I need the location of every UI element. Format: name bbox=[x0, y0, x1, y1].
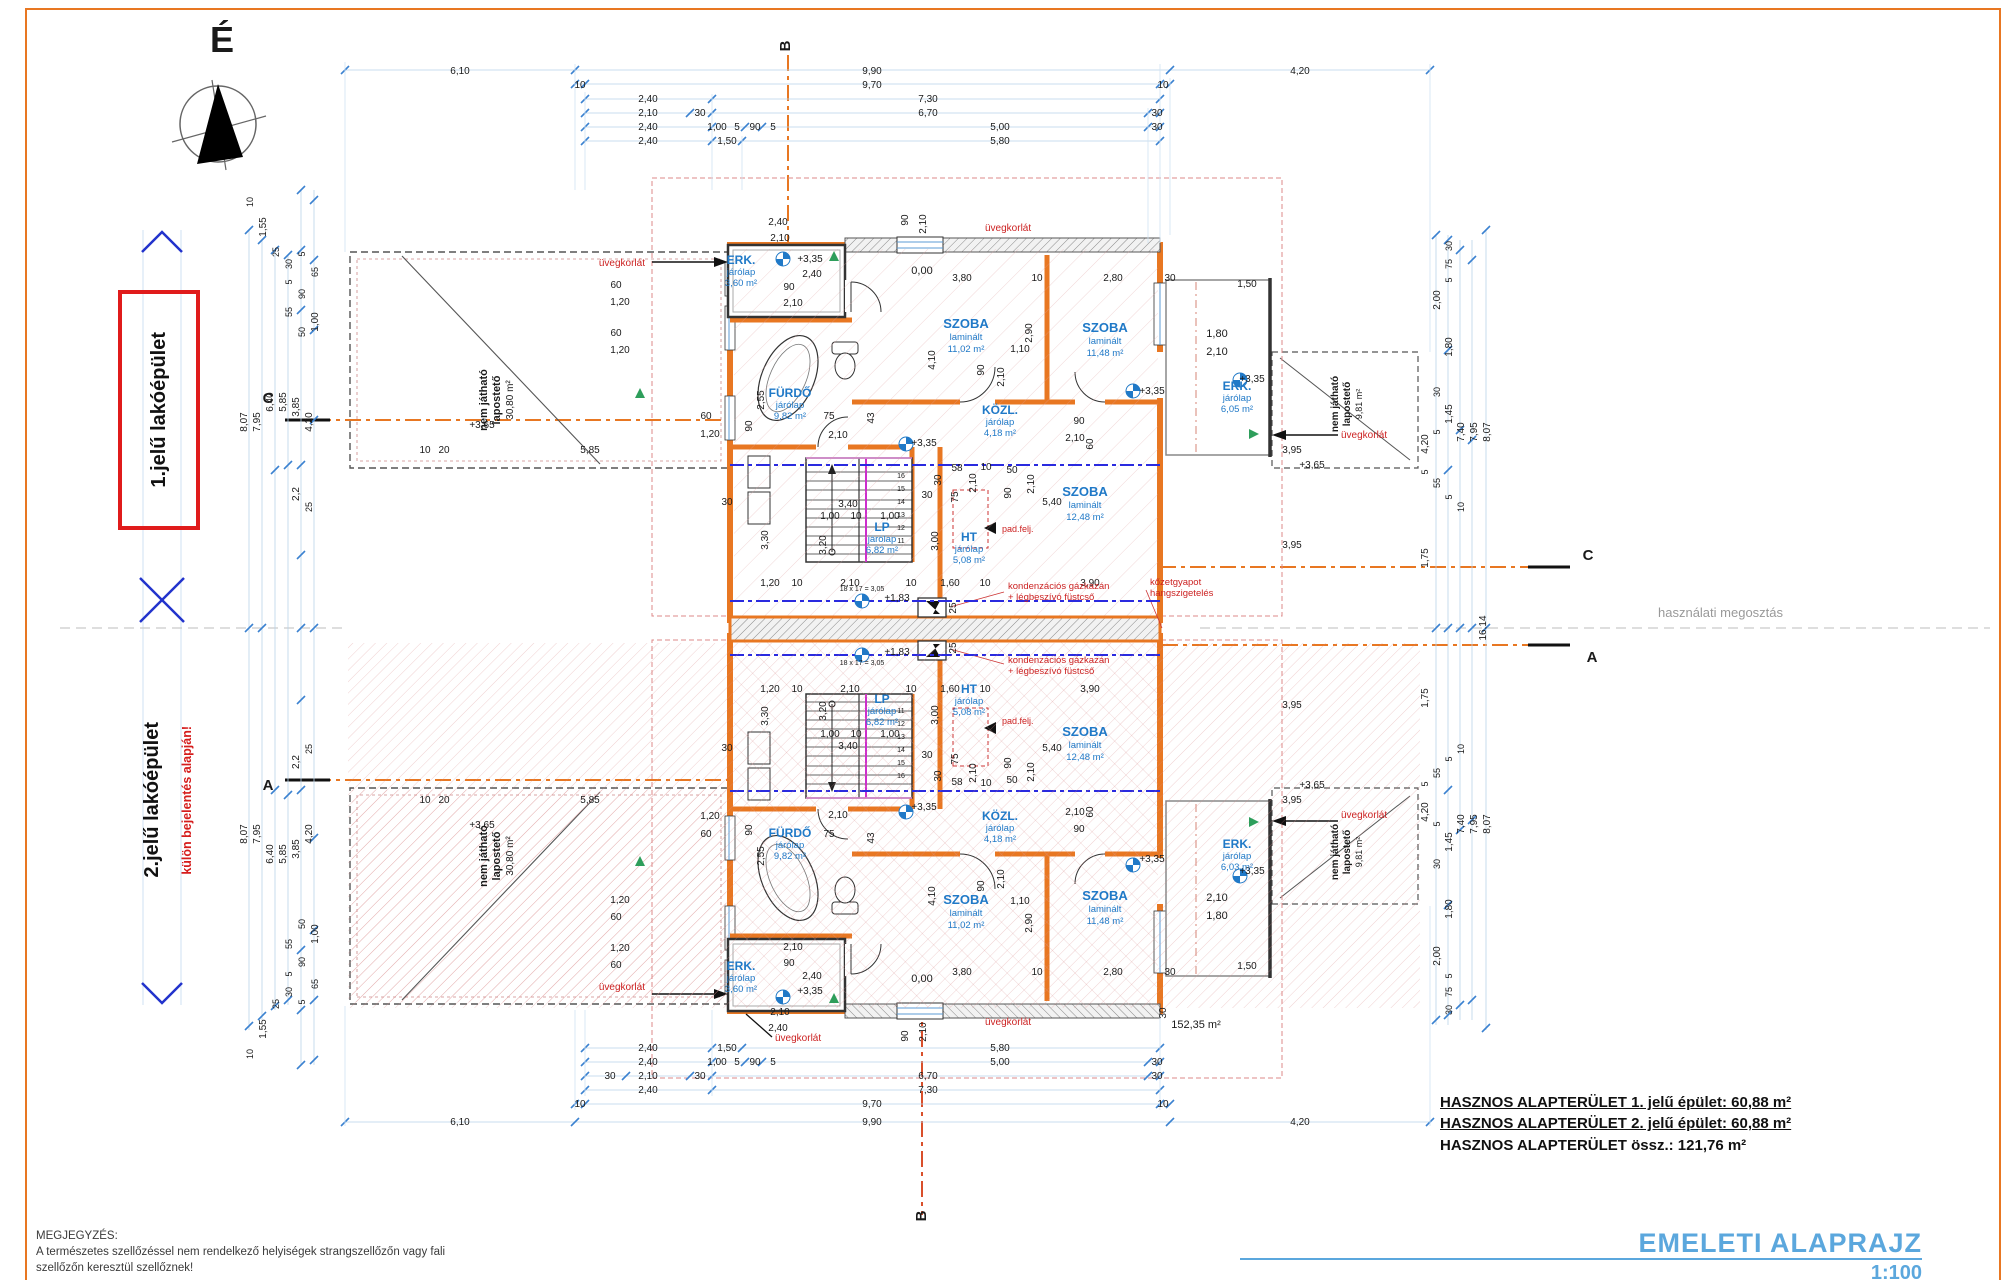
plan-label: 30 bbox=[1164, 967, 1176, 978]
plan-label: 10 bbox=[1456, 502, 1466, 512]
plan-label: 1,20 bbox=[760, 578, 780, 589]
plan-label: 2,10 bbox=[1206, 892, 1227, 904]
plan-label: 60 bbox=[610, 328, 622, 339]
plan-label: laminált bbox=[950, 908, 983, 919]
plan-label: 5 bbox=[284, 971, 294, 976]
banner-building2-note-label: külön bejelentés alapján! bbox=[180, 726, 194, 875]
plan-label: A bbox=[1587, 649, 1598, 666]
plan-label: üvegkorlát bbox=[985, 1017, 1031, 1028]
plan-label: 2,40 bbox=[802, 971, 822, 982]
plan-label: 50 bbox=[1006, 775, 1018, 786]
plan-label: 2,10 bbox=[770, 233, 790, 244]
plan-label: 3,30 bbox=[760, 530, 771, 550]
plan-label: +3,35 bbox=[911, 438, 937, 449]
notes-line1: A természetes szellőzéssel nem rendelkez… bbox=[36, 1244, 445, 1260]
plan-label: É bbox=[210, 19, 234, 60]
drawing-page: ÉBBCACAhasználati megosztás16,14152,35 m… bbox=[0, 0, 2006, 1280]
area-line3: HASZNOS ALAPTERÜLET össz.: 121,76 m² bbox=[1440, 1135, 1791, 1156]
plan-label: 60 bbox=[1085, 806, 1096, 818]
flat-roof-left bbox=[350, 252, 728, 468]
plan-label: 30 bbox=[1151, 1071, 1163, 1082]
plan-label: 5 bbox=[770, 1057, 776, 1068]
plan-label: 5,40 bbox=[1042, 743, 1062, 754]
plan-label: HT bbox=[961, 682, 978, 696]
plan-label: 7,95 bbox=[1469, 814, 1480, 834]
plan-label: 5 bbox=[297, 251, 307, 256]
plan-label: 12 bbox=[897, 525, 905, 532]
plan-label: 7,95 bbox=[252, 824, 263, 844]
plan-label: 5 bbox=[770, 122, 776, 133]
plan-label: 75 bbox=[1444, 259, 1454, 269]
plan-label: 55 bbox=[1432, 478, 1442, 488]
plan-label: 25 bbox=[271, 247, 281, 257]
plan-label: 6,40 bbox=[265, 844, 276, 864]
plan-label: 9,70 bbox=[862, 80, 882, 91]
plan-label: 90 bbox=[900, 214, 911, 226]
plan-label: B bbox=[777, 40, 794, 51]
plan-label: 58 bbox=[951, 777, 963, 788]
banner-arrow-down-icon bbox=[142, 983, 182, 1003]
area-line1: HASZNOS ALAPTERÜLET 1. jelű épület: 60,8… bbox=[1440, 1092, 1791, 1113]
plan-label: LP bbox=[874, 692, 889, 706]
plan-label: 7,40 bbox=[1456, 814, 1467, 834]
plan-label: 5,00 bbox=[990, 122, 1010, 133]
plan-label: LP bbox=[874, 520, 889, 534]
plan-label: 2,10 bbox=[1065, 433, 1085, 444]
plan-label: 2,55 bbox=[756, 390, 767, 410]
plan-label: 90 bbox=[1003, 487, 1014, 499]
plan-label: 3,80 bbox=[952, 967, 972, 978]
plan-label: 90 bbox=[1003, 757, 1014, 769]
plan-label: 1,50 bbox=[1237, 961, 1257, 972]
plan-label: lapostető bbox=[491, 831, 503, 880]
plan-label: 2,2 bbox=[291, 487, 302, 501]
plan-label: 10 bbox=[905, 684, 917, 695]
plan-label: kondenzációs gázkazán bbox=[1008, 581, 1109, 592]
plan-label: 5 bbox=[1444, 494, 1454, 499]
plan-label: 1,00 bbox=[310, 924, 321, 944]
plan-label: 65 bbox=[310, 267, 320, 277]
plan-label: 7,30 bbox=[918, 1085, 938, 1096]
plan-label: járólap bbox=[954, 696, 984, 707]
plan-label: 30 bbox=[694, 108, 706, 119]
plan-label: 10 bbox=[1031, 273, 1043, 284]
plan-label: 10 bbox=[419, 445, 431, 456]
plan-label: 30 bbox=[1151, 122, 1163, 133]
plan-label: laminált bbox=[1089, 336, 1122, 347]
plan-label: 11,48 m² bbox=[1087, 916, 1124, 927]
plan-label: 11 bbox=[897, 538, 904, 545]
plan-label: 5 bbox=[734, 1057, 740, 1068]
banner-building2: 2.jelű lakóépület bbox=[139, 690, 165, 910]
plan-label: 1,55 bbox=[258, 217, 269, 237]
plan-label: 1,00 bbox=[310, 312, 321, 332]
plan-label: 30 bbox=[1444, 1005, 1454, 1015]
plan-label: 13 bbox=[897, 512, 905, 519]
plan-label: FÜRDŐ bbox=[769, 385, 812, 400]
plan-label: járólap bbox=[726, 973, 756, 984]
plan-label: nem játható bbox=[478, 369, 490, 431]
plan-label: 30 bbox=[284, 987, 294, 997]
plan-label: 2,90 bbox=[1024, 323, 1035, 343]
plan-label: 1,20 bbox=[700, 429, 720, 440]
plan-label: 90 bbox=[744, 420, 755, 432]
plan-label: 2,10 bbox=[1206, 346, 1227, 358]
plan-label: 3,80 bbox=[952, 273, 972, 284]
plan-label: 30 bbox=[694, 1071, 706, 1082]
building2-terrace-hatch bbox=[352, 790, 726, 1002]
plan-label: 2,40 bbox=[638, 1043, 658, 1054]
plan-label: 50 bbox=[297, 327, 307, 337]
plan-label: üvegkorlát bbox=[775, 1033, 821, 1044]
plan-label: 11,48 m² bbox=[1087, 348, 1124, 359]
plan-label: 10 bbox=[905, 578, 917, 589]
plan-label: járólap bbox=[1222, 851, 1252, 862]
plan-label: járólap bbox=[775, 840, 805, 851]
plan-label: ERK. bbox=[1223, 837, 1252, 851]
area-line2: HASZNOS ALAPTERÜLET 2. jelű épület: 60,8… bbox=[1440, 1113, 1791, 1134]
plan-label: 9,90 bbox=[862, 1117, 882, 1128]
plan-label: 1,80 bbox=[1444, 337, 1455, 357]
plan-label: 3,40 bbox=[838, 499, 858, 510]
plan-label: 10 bbox=[1157, 80, 1169, 91]
plan-label: 10 bbox=[980, 462, 992, 473]
plan-label: 3,60 m² bbox=[725, 278, 757, 289]
plan-label: 2,00 bbox=[1432, 290, 1443, 310]
plan-label: üvegkorlát bbox=[599, 982, 645, 993]
plan-label: 30 bbox=[1432, 387, 1442, 397]
plan-label: ERK. bbox=[1223, 379, 1252, 393]
plan-label: 5 bbox=[1432, 821, 1442, 826]
plan-label: 5,08 m² bbox=[953, 555, 985, 566]
plan-label: 3,40 bbox=[838, 741, 858, 752]
plan-label: 8,07 bbox=[239, 412, 250, 432]
plan-label: 50 bbox=[1006, 465, 1018, 476]
plan-label: járólap bbox=[775, 400, 805, 411]
plan-label: +3,65 bbox=[1299, 460, 1325, 471]
plan-label: 90 bbox=[1073, 824, 1085, 835]
plan-label: 1,20 bbox=[700, 811, 720, 822]
plan-label: 60 bbox=[610, 280, 622, 291]
plan-label: 2,10 bbox=[1026, 762, 1037, 782]
plan-label: 5 bbox=[1444, 973, 1454, 978]
plan-label: 4,10 bbox=[927, 350, 938, 370]
plan-label: 1,60 bbox=[940, 684, 960, 695]
plan-label: KÖZL. bbox=[982, 402, 1018, 417]
plan-label: 1,20 bbox=[610, 297, 630, 308]
plan-label: 16 bbox=[897, 473, 905, 480]
plan-label: 30 bbox=[284, 259, 294, 269]
plan-label: 1,80 bbox=[1206, 910, 1227, 922]
plan-label: 7,40 bbox=[1456, 422, 1467, 442]
plan-label: lapostető bbox=[1342, 830, 1353, 874]
plan-label: 5 bbox=[297, 999, 307, 1004]
plan-label: ERK. bbox=[727, 253, 756, 267]
plan-label: 2,10 bbox=[840, 578, 860, 589]
plan-label: üvegkorlát bbox=[1341, 810, 1387, 821]
plan-label: 2,40 bbox=[768, 217, 788, 228]
plan-label: 4,18 m² bbox=[984, 428, 1016, 439]
plan-label: 30 bbox=[1151, 108, 1163, 119]
plan-label: 1,55 bbox=[258, 1019, 269, 1039]
plan-label: 4,20 bbox=[1290, 66, 1310, 77]
plan-label: 9,90 bbox=[862, 66, 882, 77]
plan-label: pad.felj. bbox=[1002, 716, 1034, 726]
plan-label: nem játható bbox=[1330, 376, 1341, 432]
plan-label: ERK. bbox=[727, 959, 756, 973]
plan-label: 30 bbox=[921, 490, 933, 501]
floor-plan-canvas: ÉBBCACAhasználati megosztás16,14152,35 m… bbox=[0, 0, 2006, 1280]
plan-label: 2,10 bbox=[638, 1071, 658, 1082]
plan-label: +1,83 bbox=[884, 593, 910, 604]
plan-label: kondenzációs gázkazán bbox=[1008, 655, 1109, 666]
plan-label: 1,80 bbox=[1444, 899, 1455, 919]
plan-label: 14 bbox=[897, 499, 905, 506]
plan-label: 10 bbox=[574, 1099, 586, 1110]
plan-label: 1,00 bbox=[820, 511, 840, 522]
plan-label: 90 bbox=[749, 122, 761, 133]
plan-label: 2,40 bbox=[638, 136, 658, 147]
useful-area-block: HASZNOS ALAPTERÜLET 1. jelű épület: 60,8… bbox=[1440, 1092, 1791, 1156]
plan-label: 5 bbox=[1444, 277, 1454, 282]
plan-label: 90 bbox=[783, 958, 795, 969]
plan-label: 60 bbox=[610, 912, 622, 923]
plan-label: hangszigetelés bbox=[1150, 588, 1214, 599]
plan-label: 3,00 bbox=[930, 705, 941, 725]
plan-label: 2,40 bbox=[638, 1057, 658, 1068]
plan-label: 2,10 bbox=[1026, 474, 1037, 494]
plan-label: 25 bbox=[304, 502, 314, 512]
plan-label: 30 bbox=[1164, 273, 1176, 284]
plan-label: 60 bbox=[700, 829, 712, 840]
plan-label: 2,10 bbox=[918, 1022, 929, 1042]
plan-label: 30,80 m² bbox=[505, 836, 516, 876]
plan-label: 0,00 bbox=[911, 265, 932, 277]
plan-label: 4,20 bbox=[1290, 1117, 1310, 1128]
plan-label: 11,02 m² bbox=[948, 920, 985, 931]
plan-label: 90 bbox=[783, 282, 795, 293]
plan-label: 90 bbox=[900, 1030, 911, 1042]
plan-label: 20 bbox=[438, 445, 450, 456]
plan-label: 43 bbox=[866, 832, 877, 844]
plan-label: 5,85 bbox=[580, 795, 600, 806]
plan-label: 2,40 bbox=[768, 1023, 788, 1034]
plan-label: 4,20 bbox=[304, 824, 315, 844]
plan-label: járólap bbox=[867, 706, 897, 717]
plan-label: SZOBA bbox=[1082, 888, 1128, 903]
plan-label: B bbox=[913, 1210, 930, 1221]
plan-label: kőzetgyapot bbox=[1150, 577, 1202, 588]
plan-label: 10 bbox=[574, 80, 586, 91]
plan-label: 2,10 bbox=[1065, 807, 1085, 818]
plan-label: használati megosztás bbox=[1658, 605, 1784, 620]
plan-label: 4,10 bbox=[927, 886, 938, 906]
plan-label: 1,20 bbox=[610, 345, 630, 356]
plan-label: 7,30 bbox=[918, 94, 938, 105]
plan-label: 60 bbox=[610, 960, 622, 971]
plan-label: 3,95 bbox=[1282, 795, 1302, 806]
plan-label: 9,82 m² bbox=[774, 851, 806, 862]
plan-label: 50 bbox=[297, 919, 307, 929]
plan-label: 10 bbox=[979, 578, 991, 589]
plan-label: 3,60 m² bbox=[725, 984, 757, 995]
plan-label: 2,10 bbox=[828, 810, 848, 821]
banner-building2-label: 2.jelű lakóépület bbox=[141, 722, 164, 878]
plan-label: 10 bbox=[850, 511, 862, 522]
plan-label: 75 bbox=[1444, 987, 1454, 997]
plan-label: +3,35 bbox=[797, 986, 823, 997]
notes-block: MEGJEGYZÉS: A természetes szellőzéssel n… bbox=[36, 1228, 445, 1276]
plan-label: 4,20 bbox=[304, 412, 315, 432]
plan-label: járólap bbox=[954, 544, 984, 555]
plan-label: 1,75 bbox=[1420, 548, 1431, 568]
plan-label: 90 bbox=[749, 1057, 761, 1068]
plan-label: 30 bbox=[921, 750, 933, 761]
drawing-scale: 1:100 bbox=[1700, 1262, 1922, 1280]
plan-label: 10 bbox=[1157, 1099, 1169, 1110]
plan-label: laminált bbox=[950, 332, 983, 343]
plan-label: 5,85 bbox=[278, 392, 289, 412]
plan-label: 3,30 bbox=[760, 706, 771, 726]
plan-label: 9,70 bbox=[862, 1099, 882, 1110]
plan-label: 2,40 bbox=[638, 122, 658, 133]
plan-label: 2,2 bbox=[291, 755, 302, 769]
plan-label: 3,95 bbox=[1282, 540, 1302, 551]
plan-label: üvegkorlát bbox=[599, 258, 645, 269]
plan-label: 30 bbox=[721, 743, 733, 754]
plan-label: 6,82 m² bbox=[866, 717, 898, 728]
plan-label: C bbox=[1583, 547, 1594, 564]
plan-label: 1,00 bbox=[707, 122, 727, 133]
plan-label: 6,10 bbox=[450, 1117, 470, 1128]
plan-label: 7,95 bbox=[1469, 422, 1480, 442]
plan-label: járólap bbox=[1222, 393, 1252, 404]
notes-line2: szellőzőn keresztül szellőznek! bbox=[36, 1260, 445, 1276]
plan-label: 2,10 bbox=[996, 367, 1007, 387]
plan-label: 2,10 bbox=[968, 473, 979, 493]
plan-label: 2,90 bbox=[1024, 913, 1035, 933]
plan-label: 6,40 bbox=[265, 392, 276, 412]
plan-label: 10 bbox=[245, 197, 255, 207]
balcony-right bbox=[1166, 278, 1270, 457]
plan-label: 5,08 m² bbox=[953, 707, 985, 718]
plan-label: 30 bbox=[604, 1071, 616, 1082]
plan-label: 25 bbox=[948, 602, 959, 614]
plan-label: 30 bbox=[1151, 1057, 1163, 1068]
plan-label: 8,07 bbox=[1482, 422, 1493, 442]
plan-label: 25 bbox=[948, 642, 959, 654]
title-underline bbox=[1240, 1258, 1922, 1260]
plan-label: 2,10 bbox=[840, 684, 860, 695]
plan-label: pad.felj. bbox=[1002, 524, 1034, 534]
plan-label: 1,20 bbox=[760, 684, 780, 695]
plan-label: +3,35 bbox=[797, 254, 823, 265]
plan-label: 15 bbox=[897, 760, 905, 767]
plan-label: 75 bbox=[823, 829, 835, 840]
plan-label: 9,81 m² bbox=[1354, 389, 1364, 420]
plan-label: 3,85 bbox=[291, 397, 302, 417]
plan-label: 5 bbox=[284, 279, 294, 284]
plan-label: 2,00 bbox=[1432, 946, 1443, 966]
plan-label: SZOBA bbox=[1062, 484, 1108, 499]
plan-label: 5 bbox=[1444, 756, 1454, 761]
plan-label: 20 bbox=[438, 795, 450, 806]
plan-label: lapostető bbox=[1342, 382, 1353, 426]
plan-label: 10 bbox=[791, 578, 803, 589]
plan-label: 5 bbox=[734, 122, 740, 133]
plan-label: járólap bbox=[726, 267, 756, 278]
plan-label: járólap bbox=[985, 417, 1015, 428]
plan-label: 2,10 bbox=[996, 869, 1007, 889]
plan-label: 7,95 bbox=[252, 412, 263, 432]
plan-label: 25 bbox=[304, 744, 314, 754]
plan-label: 0,00 bbox=[911, 973, 932, 985]
plan-label: 6,70 bbox=[918, 1071, 938, 1082]
notes-heading: MEGJEGYZÉS: bbox=[36, 1228, 445, 1244]
plan-label: 1,60 bbox=[940, 578, 960, 589]
plan-label: laminált bbox=[1089, 904, 1122, 915]
plan-label: A bbox=[263, 777, 274, 794]
plan-label: 3,20 bbox=[818, 701, 829, 721]
plan-label: 90 bbox=[297, 957, 307, 967]
plan-label: 5,00 bbox=[990, 1057, 1010, 1068]
plan-label: 4,20 bbox=[1420, 434, 1431, 454]
plan-label: 2,10 bbox=[968, 763, 979, 783]
plan-label: 10 bbox=[980, 778, 992, 789]
plan-label: +3,35 bbox=[911, 802, 937, 813]
plan-label: 90 bbox=[297, 289, 307, 299]
plan-label: +1,83 bbox=[884, 647, 910, 658]
plan-label: 6,05 m² bbox=[1221, 404, 1253, 415]
plan-label: 12 bbox=[897, 721, 905, 728]
plan-label: + légbeszívó füstcső bbox=[1008, 592, 1094, 603]
plan-label: 9,82 m² bbox=[774, 411, 806, 422]
plan-label: +3,35 bbox=[1139, 854, 1165, 865]
plan-label: SZOBA bbox=[1082, 320, 1128, 335]
plan-label: 30 bbox=[1444, 241, 1454, 251]
plan-label: 30 bbox=[721, 497, 733, 508]
plan-label: 4,20 bbox=[1420, 802, 1431, 822]
plan-label: 5 bbox=[1420, 469, 1430, 474]
plan-label: 1,75 bbox=[1420, 688, 1431, 708]
plan-label: 10 bbox=[1456, 744, 1466, 754]
plan-label: 2,10 bbox=[828, 430, 848, 441]
north-arrow-icon bbox=[172, 80, 266, 170]
plan-label: 3,00 bbox=[930, 531, 941, 551]
plan-label: 1,50 bbox=[717, 1043, 737, 1054]
plan-label: 3,85 bbox=[291, 839, 302, 859]
plan-label: 2,40 bbox=[802, 269, 822, 280]
plan-label: üvegkorlát bbox=[1341, 430, 1387, 441]
plan-label: 58 bbox=[951, 463, 963, 474]
plan-label: 2,10 bbox=[638, 108, 658, 119]
plan-label: 5,40 bbox=[1042, 497, 1062, 508]
plan-label: 9,81 m² bbox=[1354, 837, 1364, 868]
plan-label: 30 bbox=[933, 770, 944, 782]
plan-label: 1,45 bbox=[1444, 404, 1455, 424]
plan-label: 2,40 bbox=[638, 1085, 658, 1096]
plan-label: 16 bbox=[897, 773, 905, 780]
plan-label: 1,50 bbox=[717, 136, 737, 147]
plan-label: 75 bbox=[950, 491, 961, 503]
plan-label: üvegkorlát bbox=[985, 223, 1031, 234]
banner-x-icon bbox=[140, 578, 184, 622]
plan-label: 5 bbox=[1432, 429, 1442, 434]
banner-building1-label: 1.jelű lakóépület bbox=[148, 332, 171, 488]
banner-building2-note: külön bejelentés alapján! bbox=[178, 690, 196, 910]
plan-label: 90 bbox=[744, 824, 755, 836]
plan-label: 2,10 bbox=[783, 298, 803, 309]
